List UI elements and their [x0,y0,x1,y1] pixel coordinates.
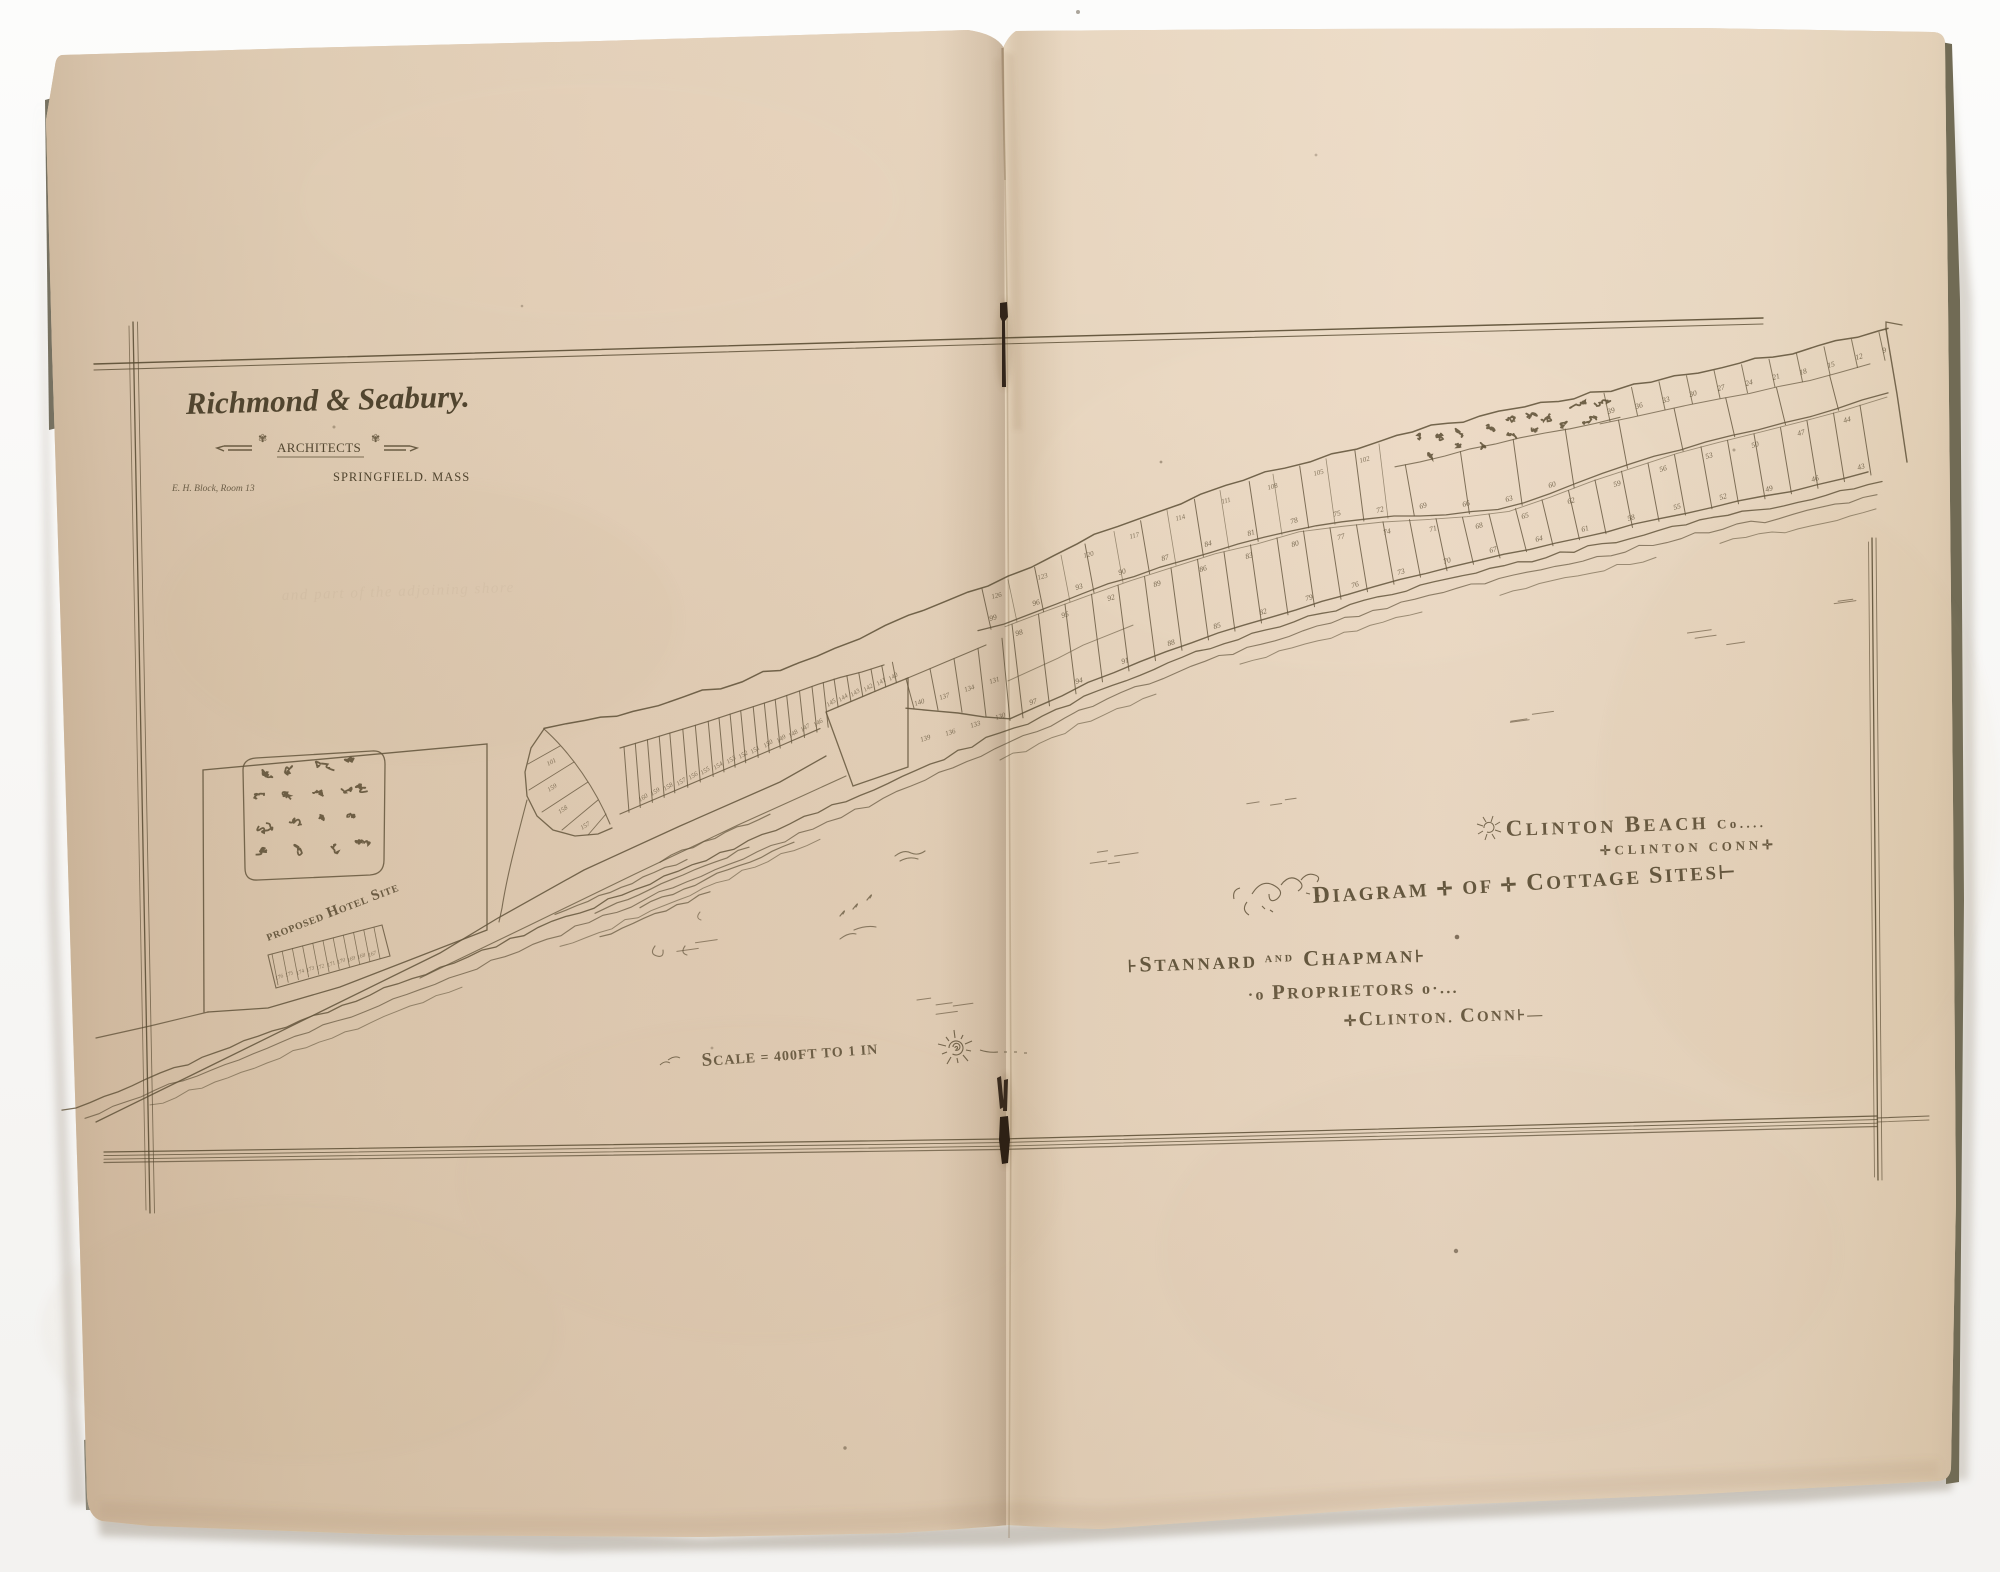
svg-text:✾: ✾ [258,433,267,445]
svg-text:SPRINGFIELD. MASS: SPRINGFIELD. MASS [333,470,470,484]
svg-text:✾: ✾ [371,433,380,445]
svg-text:E. H. Block, Room 13: E. H. Block, Room 13 [171,484,255,494]
svg-text:ARCHITECTS: ARCHITECTS [277,440,361,455]
svg-text:Richmond & Seabury.: Richmond & Seabury. [184,379,470,421]
